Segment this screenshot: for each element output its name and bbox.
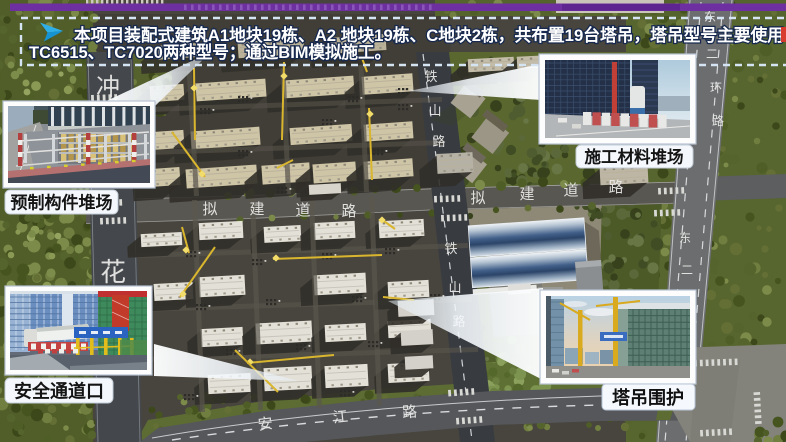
svg-text:安: 安 [257, 415, 274, 434]
svg-text:铁: 铁 [424, 69, 437, 84]
svg-text:山: 山 [448, 280, 461, 295]
svg-text:山: 山 [428, 103, 441, 118]
svg-text:路: 路 [402, 404, 418, 422]
svg-text:道: 道 [295, 202, 310, 219]
svg-text:拟: 拟 [202, 201, 217, 218]
svg-text:江: 江 [332, 408, 349, 426]
svg-text:路: 路 [432, 134, 445, 149]
svg-text:本项目装配式建筑A1地块19栋、A2 地块19栋、C地块2栋: 本项目装配式建筑A1地块19栋、A2 地块19栋、C地块2栋，共布置19台塔吊，… [74, 25, 784, 45]
svg-text:TC6515、TC7020两种型号；通过BIM模拟施工。: TC6515、TC7020两种型号；通过BIM模拟施工。 [29, 42, 391, 62]
svg-text:建: 建 [249, 201, 264, 218]
svg-text:道: 道 [563, 182, 578, 199]
svg-text:花: 花 [100, 257, 126, 287]
svg-text:拟: 拟 [470, 190, 485, 207]
svg-text:环: 环 [710, 81, 722, 95]
svg-text:安全通道口: 安全通道口 [14, 381, 104, 402]
svg-text:施工材料堆场: 施工材料堆场 [585, 147, 684, 167]
svg-text:建: 建 [519, 186, 534, 203]
svg-text:塔吊围护: 塔吊围护 [612, 387, 684, 408]
svg-text:铁: 铁 [444, 241, 457, 256]
svg-text:路: 路 [341, 203, 356, 220]
svg-text:二: 二 [681, 263, 693, 277]
svg-text:路: 路 [608, 179, 623, 196]
svg-text:东: 东 [679, 231, 691, 245]
svg-text:路: 路 [712, 113, 724, 128]
svg-text:二: 二 [706, 47, 718, 61]
svg-text:预制构件堆场: 预制构件堆场 [11, 193, 113, 213]
